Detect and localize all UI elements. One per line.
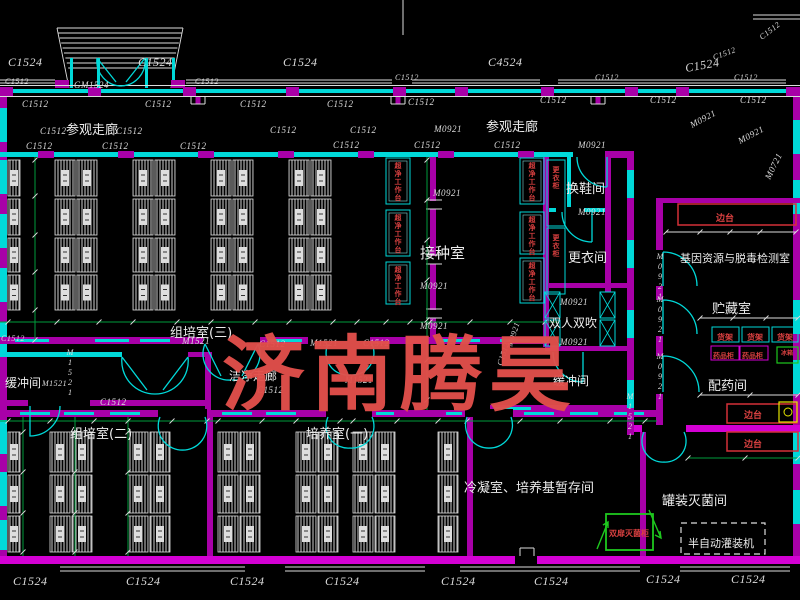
rack-tag [134, 444, 142, 460]
code-label: C1524 [441, 574, 476, 588]
code-label: M0921 [687, 108, 717, 130]
wall-segment [101, 89, 183, 93]
wall-segment [573, 150, 605, 159]
floor-plan: C1524C1524C1524C4524C1524C1512C1512GM152… [0, 0, 800, 600]
rack-tag [246, 486, 254, 502]
door-arc [663, 300, 697, 334]
wall-segment [0, 520, 7, 550]
wall-segment [20, 412, 50, 415]
code-label: C1512 [116, 126, 143, 136]
rack-tag [83, 209, 91, 225]
sink-symbol [784, 408, 792, 416]
wall-segment [396, 97, 401, 104]
door-arc [642, 432, 686, 462]
rack-tag [224, 526, 232, 542]
wall-segment [278, 151, 294, 158]
code-label: C1512 [350, 125, 377, 135]
code-label: C1512 [650, 95, 677, 105]
room-label: 缓冲间 [5, 375, 41, 390]
rack-tag [161, 247, 169, 263]
equipment-label: 货架 [776, 332, 793, 342]
code-label: C1512 [758, 20, 782, 42]
labels-layer: C1524C1524C1524C4524C1524C1512C1512GM152… [1, 20, 793, 588]
wall-segment [468, 89, 541, 93]
rack-tag [83, 285, 91, 301]
wall-segment [406, 89, 455, 93]
wall-segment [676, 87, 689, 96]
rack-tag [381, 526, 389, 542]
code-label: M0921 [559, 297, 588, 307]
equipment-label: 超净工作台 [394, 161, 403, 202]
wall-segment [438, 151, 454, 158]
code-label: M0921 [419, 281, 448, 291]
code-label: M0921 [735, 124, 765, 146]
code-label: C1512 [712, 45, 737, 62]
room-label: 换鞋间 [566, 181, 605, 197]
wall-segment [627, 240, 634, 268]
code-label: C1524 [8, 55, 43, 69]
watermark-layer: 济南腾昊 [222, 327, 578, 423]
wall-segment [95, 339, 129, 342]
code-label: C4524 [488, 55, 523, 69]
rack-tag [217, 285, 225, 301]
room-label: 冷凝室、培养基暂存间 [464, 480, 594, 496]
equipment-label: 边台 [743, 409, 762, 421]
code-label: M0921 [577, 207, 606, 217]
wall-segment [196, 89, 286, 93]
code-label: M0921 [433, 124, 462, 134]
rack-tag [10, 444, 18, 460]
rack-tag [10, 486, 18, 502]
rack-tag [217, 247, 225, 263]
code-label: C1524 [646, 572, 681, 586]
equipment-label: 药品柜 [713, 351, 734, 360]
stair-post [70, 58, 73, 88]
rack-tag [156, 486, 164, 502]
code-label: C1524 [534, 574, 569, 588]
code-label: C1524 [325, 574, 360, 588]
rack-tag [359, 526, 367, 542]
rack-tag [239, 285, 247, 301]
door-arc [663, 356, 699, 392]
rack-tag [224, 444, 232, 460]
wall-segment [0, 160, 7, 194]
code-label: C1512 [145, 99, 172, 109]
rack-tag [302, 444, 310, 460]
code-label: C1512 [327, 99, 354, 109]
equipment-label: 超净工作台 [394, 265, 403, 306]
room-label: 贮藏室 [712, 301, 751, 317]
rack-tag [302, 526, 310, 542]
rack-tag [61, 285, 69, 301]
room-label: 参观走廊 [66, 122, 118, 138]
rack-tag [317, 247, 325, 263]
wall-segment [656, 198, 800, 203]
rack-tag [317, 209, 325, 225]
room-label: 罐装灭菌间 [662, 494, 727, 509]
room-label: 组培室(二) [70, 426, 132, 442]
code-label: C1512 [40, 126, 67, 136]
rack-tag [381, 444, 389, 460]
wall-segment [515, 556, 537, 564]
equipment-label: 药品柜 [742, 351, 763, 360]
wall-segment [299, 89, 393, 93]
equipment-label: 边台 [743, 438, 762, 450]
wall-segment [0, 87, 13, 96]
code-label: C1512 [1, 334, 25, 343]
code-label: M0921 [655, 295, 665, 345]
code-label: C1512 [180, 141, 207, 151]
equipment-label: 货架 [746, 332, 763, 342]
wall-segment [793, 120, 800, 154]
wall-segment [793, 360, 800, 394]
code-label: GM1524 [74, 80, 109, 90]
rack-tag [295, 170, 303, 186]
rack-tag [161, 209, 169, 225]
code-label: C1512 [26, 141, 53, 151]
wall-segment [207, 417, 213, 556]
rack-tag [246, 444, 254, 460]
wall-segment [0, 556, 800, 564]
walls-layer [0, 87, 800, 564]
code-label: C1512 [408, 97, 435, 107]
rack-tag [78, 486, 86, 502]
wall-segment [786, 87, 800, 96]
rack-tag [295, 285, 303, 301]
rack-tag [78, 444, 86, 460]
rack-tag [56, 444, 64, 460]
rack-tag [217, 170, 225, 186]
wall-segment [196, 97, 201, 104]
code-label: C1512 [100, 397, 127, 407]
code-label: M0921 [432, 188, 461, 198]
code-label: C1512 [734, 73, 758, 82]
rack-tag [10, 247, 18, 263]
code-label: C1524 [283, 55, 318, 69]
rack-tag [359, 486, 367, 502]
equipment-label: 超净工作台 [528, 261, 537, 302]
wall-segment [627, 170, 634, 198]
wall-segment [183, 87, 196, 96]
wall-segment [627, 310, 634, 338]
stair-base [171, 80, 185, 88]
wall-segment [642, 424, 686, 433]
rack-tag [134, 526, 142, 542]
code-label: M1521 [65, 348, 75, 398]
rack-tag [161, 285, 169, 301]
wall-segment [638, 89, 676, 93]
equipment-label: 更衣柜 [552, 234, 561, 258]
wall-segment [0, 152, 634, 157]
wall-segment [158, 409, 207, 418]
stair-base [55, 80, 69, 88]
equipment-label: 双扉灭菌柜 [609, 528, 649, 538]
rack-tag [217, 209, 225, 225]
wall-segment [393, 87, 406, 96]
code-label: C1512 [240, 99, 267, 109]
wall-segment [605, 152, 611, 292]
code-label: C1512 [22, 99, 49, 109]
wall-segment [596, 97, 601, 104]
room-label: 接种室 [420, 244, 465, 262]
rack-tag [161, 170, 169, 186]
equipment-label: 超净工作台 [394, 213, 403, 254]
code-label: C1524 [731, 572, 766, 586]
wall-segment [0, 352, 122, 357]
wall-segment [0, 214, 7, 248]
equipment-label: 超净工作台 [528, 215, 537, 256]
equipment-label: 货架 [716, 332, 733, 342]
rack-tag [61, 209, 69, 225]
rack-tag [156, 526, 164, 542]
wall-segment [430, 310, 436, 318]
wall-segment [625, 87, 638, 96]
wall-segment [198, 151, 214, 158]
code-label: C1512 [333, 140, 360, 150]
rack-tag [83, 247, 91, 263]
rack-tag [444, 486, 452, 502]
room-label: 更衣间 [568, 250, 607, 266]
rack-tag [10, 170, 18, 186]
equipment-box [727, 432, 798, 451]
equipment-label: 边台 [715, 212, 734, 224]
code-label: C1512 [595, 73, 619, 82]
rack-tag [444, 444, 452, 460]
code-label: M0921 [577, 140, 606, 150]
wall-segment [0, 420, 7, 454]
code-label: C1512 [102, 141, 129, 151]
wall-segment [140, 339, 170, 342]
wall-segment [358, 151, 374, 158]
rack-tag [224, 486, 232, 502]
wall-segment [545, 283, 634, 288]
rack-tag [444, 526, 452, 542]
door-arc [122, 357, 188, 394]
rack-tag [239, 247, 247, 263]
code-label: M1521 [41, 379, 67, 388]
code-label: C1512 [395, 73, 419, 82]
arrow-mark [649, 510, 661, 538]
wall-segment [0, 472, 7, 506]
wall-segment [28, 399, 90, 407]
rack-tag [61, 247, 69, 263]
rack-tag [139, 209, 147, 225]
rack-tag [324, 486, 332, 502]
code-label: C1524 [126, 574, 161, 588]
rack-tag [78, 526, 86, 542]
wall-segment [455, 87, 468, 96]
wall-segment [286, 87, 299, 96]
rack-tag [139, 285, 147, 301]
equipment-label: 超净工作台 [528, 161, 537, 202]
code-label: C1512 [5, 77, 29, 86]
rack-tag [317, 170, 325, 186]
wall-segment [38, 151, 54, 158]
wall-segment [430, 201, 436, 209]
room-label: 配药间 [708, 379, 747, 394]
rack-tag [302, 486, 310, 502]
rack-tag [83, 170, 91, 186]
rack-tag [10, 285, 18, 301]
wall-segment [518, 151, 534, 158]
wall-segment [554, 89, 625, 93]
code-label: C1512 [414, 140, 441, 150]
rack-tag [239, 170, 247, 186]
rack-tag [134, 486, 142, 502]
code-label: C1512 [540, 95, 567, 105]
rack-tag [295, 209, 303, 225]
code-label: C1524 [230, 574, 265, 588]
rack-tag [139, 247, 147, 263]
rack-tag [324, 526, 332, 542]
wall-segment [689, 89, 786, 93]
room-label: 半自动灌装机 [688, 536, 754, 550]
equipment-label: 更衣柜 [552, 166, 561, 190]
equipment-box [678, 204, 796, 225]
code-label: C1512 [195, 77, 219, 86]
wall-segment [0, 108, 7, 142]
rack-tag [56, 486, 64, 502]
rack-tag [381, 486, 389, 502]
wall-segment [793, 490, 800, 524]
rack-tag [156, 444, 164, 460]
rack-tag [56, 526, 64, 542]
code-label: C1524 [13, 574, 48, 588]
rack-tag [239, 209, 247, 225]
wall-segment [64, 412, 94, 415]
rack-tag [139, 170, 147, 186]
room-label: 参观走廊 [486, 119, 538, 135]
wall-segment [0, 268, 7, 302]
code-label: C1512 [740, 95, 767, 105]
code-label: M0721 [762, 151, 784, 181]
rack-tag [317, 285, 325, 301]
rack-tag [61, 170, 69, 186]
room-label: 基因资源与脱毒检测室 [680, 251, 790, 265]
wall-segment [110, 412, 140, 415]
equipment-label: 冰箱 [781, 349, 793, 357]
code-label: C1512 [494, 140, 521, 150]
wall-segment [118, 151, 134, 158]
code-label: C1524 [138, 55, 173, 69]
rack-tag [10, 209, 18, 225]
cad-floor-plan-canvas: C1524C1524C1524C4524C1524C1512C1512GM152… [0, 0, 800, 600]
watermark-text: 济南腾昊 [222, 327, 578, 423]
rack-tag [324, 444, 332, 460]
code-label: M0921 [655, 352, 665, 402]
code-label: C1512 [270, 125, 297, 135]
code-label: M1521 [625, 392, 635, 442]
rack-tag [10, 526, 18, 542]
rack-tag [295, 247, 303, 263]
rack-tag [246, 526, 254, 542]
room-label: 培养室(一) [306, 426, 368, 442]
